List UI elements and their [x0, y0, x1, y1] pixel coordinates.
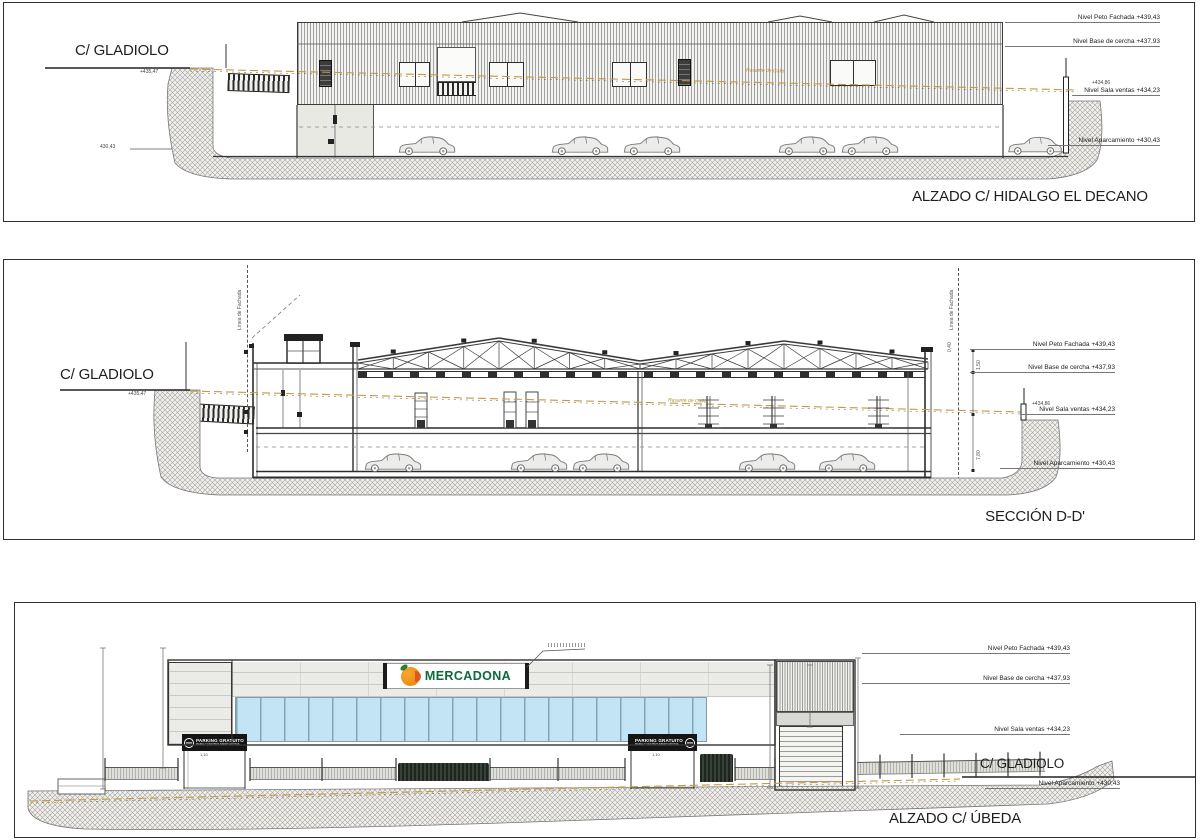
facade-line-left: [247, 265, 248, 452]
rasante-label-p2: Rasante de Calle: [668, 397, 707, 404]
level-sala-p2: Nivel Sala ventas +434,23: [1020, 406, 1115, 415]
orange-fruit-icon: [401, 667, 420, 686]
facade-corrugated-right: [776, 661, 854, 712]
louver-grille: [437, 82, 476, 96]
window-3: [612, 62, 647, 87]
title-alzado-hidalgo: ALZADO C/ HIDALGO EL DECANO: [870, 188, 1190, 205]
title-seccion-dd: SECCIÓN D-D': [920, 508, 1150, 525]
lintel-band: [776, 712, 854, 726]
brand-wordmark: MERCADONA: [425, 669, 511, 683]
parking-sign-right: PARKING GRATUITO PARA CLIENTES MERCADONA: [628, 734, 697, 751]
rasante-label-p1: Rasante de Calle: [746, 67, 785, 74]
window-small-1: [319, 60, 332, 87]
level-aparcamiento-p3: Nivel Aparcamiento +430,43: [985, 780, 1120, 789]
ramp-railing-louver: [227, 73, 290, 93]
street-label-gladiolo-p2: C/ GLADIOLO: [60, 366, 154, 383]
dim-sala-apark: 7,80: [977, 450, 982, 460]
street-fence: [250, 767, 396, 780]
window-2: [489, 62, 524, 87]
sign-bracket-left: [383, 663, 387, 689]
linea-fachada-right-label: Línea de Fachada: [950, 290, 955, 330]
level-aparcamiento-p2: Nivel Aparcamiento +430,43: [1000, 460, 1115, 469]
street-fence: [735, 767, 775, 780]
street-level-p1: +435,47: [140, 70, 158, 75]
window-1: [399, 62, 430, 87]
window-4: [830, 60, 876, 86]
linea-fachada-left-label: Línea de Fachada: [238, 290, 243, 330]
prohibition-icon: [685, 738, 695, 748]
street-level-p2: +435,47: [128, 392, 146, 397]
prohibition-icon: [184, 738, 194, 748]
sign-line2: PARA CLIENTES MERCADONA: [196, 743, 244, 746]
architectural-drawing-sheet: MERCADONA PARKING GRATUITO PARA CLIENTES…: [0, 0, 1200, 840]
dim-parapet: 0,40: [948, 342, 953, 352]
ceiling-deck-band: [358, 371, 925, 378]
level-peto-p1: Nivel Peto Fachada +439,43: [1005, 14, 1160, 23]
sign-line2: PARA CLIENTES MERCADONA: [635, 743, 683, 746]
hedge-tall: [700, 754, 733, 782]
level-peto-p3: Nivel Peto Fachada +439,43: [862, 645, 1070, 654]
roller-shutter-door: [779, 726, 843, 788]
door-dim-left: 1,10: [200, 753, 208, 757]
street-fence: [490, 767, 625, 780]
window-small-2: [678, 59, 691, 86]
street-label-gladiolo-p3: C/ GLADIOLO: [980, 756, 1064, 771]
panel-seccion-dd: [3, 259, 1195, 540]
hedge: [398, 763, 489, 781]
mercadona-logo-sign: MERCADONA: [383, 663, 529, 689]
level-aparcamiento-p1: Nivel Aparcamiento +430,43: [1048, 137, 1160, 146]
level-sala-p1: Nivel Sala ventas +434,23: [1072, 87, 1160, 96]
level-cercha-p3: Nivel Base de cercha +437,93: [862, 675, 1070, 684]
facade-left-column: [168, 662, 232, 745]
ramp-railing-louver-section: [187, 403, 255, 424]
facade-recessed-panel: [437, 47, 476, 82]
street-fence: [105, 767, 178, 780]
apark-level-small-p1: 430,43: [100, 145, 115, 150]
level-cercha-p1: Nivel Base de cercha +437,93: [1005, 38, 1160, 47]
parking-sign-left: PARKING GRATUITO PARA CLIENTES MERCADONA: [182, 734, 247, 751]
level-cercha-p2: Nivel Base de cercha +437,93: [970, 364, 1115, 373]
ramp-wall-box: [298, 105, 374, 158]
sign-bracket-right: [525, 663, 529, 689]
logo-callout-note: [548, 643, 586, 647]
door-dim-right: 1,10: [652, 753, 660, 757]
facade-line-right: [958, 268, 959, 480]
street-label-gladiolo-p1: C/ GLADIOLO: [75, 42, 169, 59]
title-alzado-ubeda: ALZADO C/ ÚBEDA: [805, 810, 1105, 827]
level-sala-p3: Nivel Sala ventas +434,23: [900, 726, 1070, 735]
level-sala-mark-p1: +434,86: [1092, 81, 1110, 86]
level-peto-p2: Nivel Peto Fachada +439,43: [970, 341, 1115, 350]
